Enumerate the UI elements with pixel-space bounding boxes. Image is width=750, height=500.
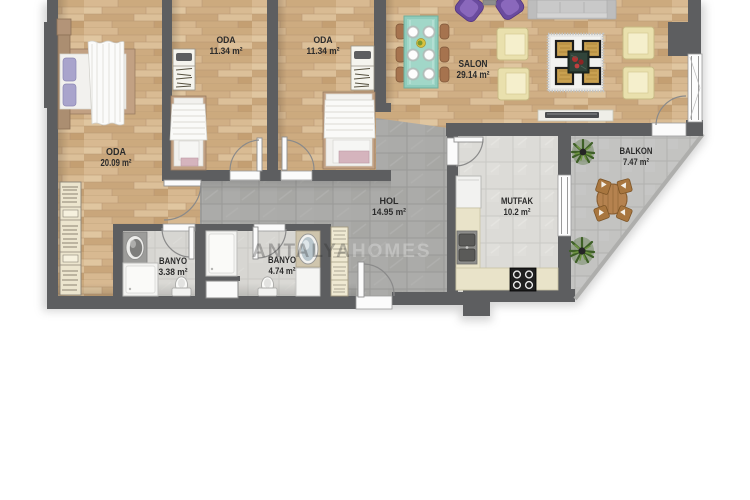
svg-text:11.34 m²: 11.34 m² — [307, 46, 340, 57]
svg-text:3.38 m²: 3.38 m² — [159, 267, 188, 278]
svg-text:ODA: ODA — [217, 35, 236, 46]
svg-text:10.2 m²: 10.2 m² — [504, 207, 531, 218]
svg-text:11.34 m²: 11.34 m² — [210, 46, 243, 57]
svg-text:29.14 m²: 29.14 m² — [457, 70, 491, 81]
svg-text:7.47 m²: 7.47 m² — [623, 157, 649, 168]
svg-text:BALKON: BALKON — [620, 146, 653, 157]
svg-text:SALON: SALON — [459, 59, 488, 70]
svg-text:ODA: ODA — [314, 35, 333, 46]
svg-text:BANYO: BANYO — [268, 255, 296, 266]
svg-text:20.09 m²: 20.09 m² — [101, 158, 133, 169]
svg-text:MUTFAK: MUTFAK — [501, 196, 533, 207]
svg-text:ODA: ODA — [106, 147, 126, 158]
svg-text:HOL: HOL — [380, 196, 399, 207]
svg-text:14.95 m²: 14.95 m² — [372, 207, 406, 218]
svg-text:4.74 m²: 4.74 m² — [269, 266, 296, 277]
svg-text:BANYO: BANYO — [159, 256, 187, 267]
